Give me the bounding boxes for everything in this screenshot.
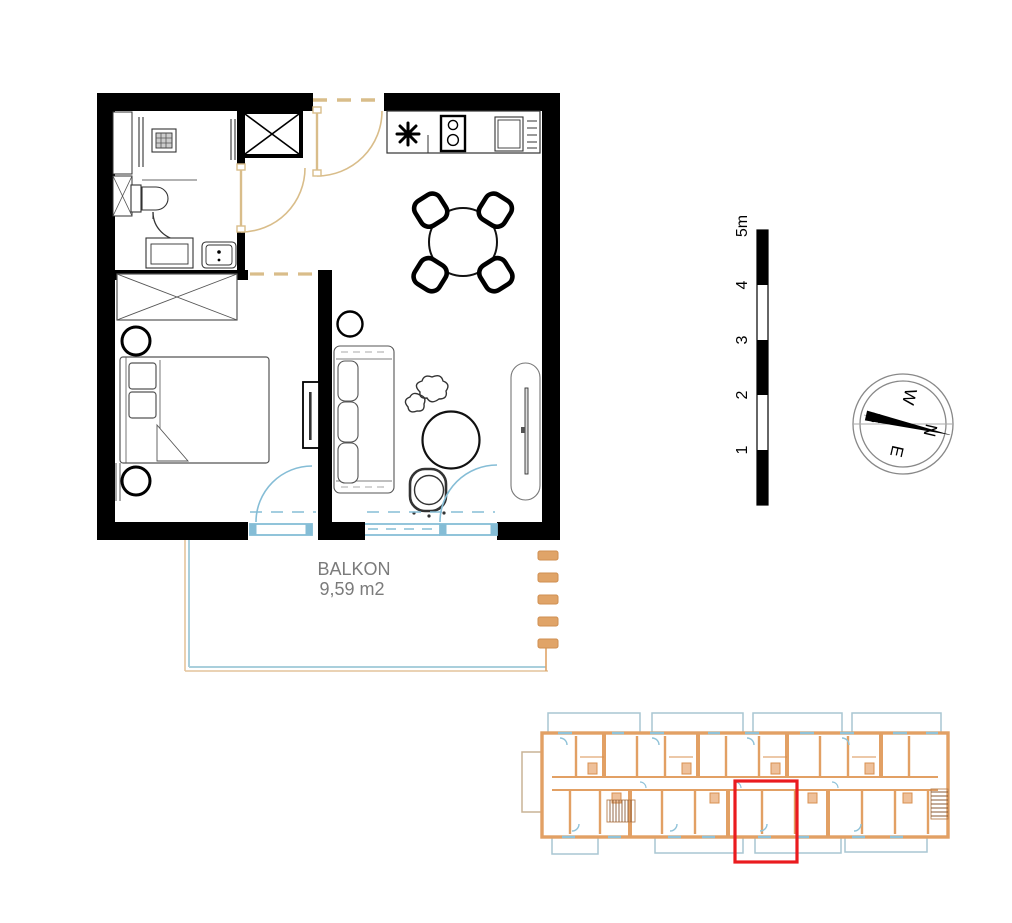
crossed-wardrobe-icon [117, 274, 237, 320]
bathroom [131, 117, 236, 268]
scale-label-2: 2 [734, 390, 751, 399]
dining-set [410, 190, 516, 294]
balcony: BALKON 9,59 m2 [185, 540, 558, 671]
crossed-shaft-icon [243, 112, 301, 156]
washing-machine-icon [152, 129, 176, 152]
sink-icon [202, 242, 236, 268]
radiator-icon [116, 463, 120, 501]
building-overview [522, 713, 948, 862]
scale-label-4: 4 [734, 280, 751, 289]
vanity-cabinet [146, 238, 193, 268]
scale-label-5m: 5m [734, 215, 751, 237]
floor-lamp-icon [338, 312, 363, 337]
tv-console [511, 363, 540, 500]
scale-bar: 1 2 3 4 5m [734, 215, 768, 505]
shower-icon [153, 212, 181, 240]
living-room [334, 312, 540, 518]
balcony-label: BALKON [317, 559, 390, 579]
scale-label-3: 3 [734, 335, 751, 344]
floorplan-canvas: BALKON 9,59 m2 1 2 3 4 5m N E S W [0, 0, 1012, 923]
stove-burners-icon [441, 116, 465, 151]
coffee-table [423, 412, 480, 469]
bathroom-door [237, 164, 305, 232]
balcony-area-label: 9,59 m2 [319, 579, 384, 599]
wall-duct [113, 112, 132, 216]
sofa [334, 346, 394, 493]
overview-balconies-top [548, 713, 941, 734]
nightstand [122, 467, 150, 495]
compass-rose-icon: N E S W [853, 374, 959, 474]
bedroom [116, 274, 319, 501]
apartment-plan: BALKON 9,59 m2 [97, 93, 560, 671]
plant-icon [405, 376, 447, 412]
nightstand [122, 327, 150, 355]
entrance-door [313, 100, 384, 176]
bedroom-tv-cabinet [303, 382, 319, 448]
scale-label-1: 1 [734, 445, 751, 454]
balcony-rail-posts [538, 551, 558, 648]
kitchen [387, 111, 540, 153]
toilet-icon [131, 185, 168, 212]
overview-left-wing [522, 752, 542, 812]
asterisk-icon [397, 123, 419, 145]
bed [120, 357, 269, 463]
